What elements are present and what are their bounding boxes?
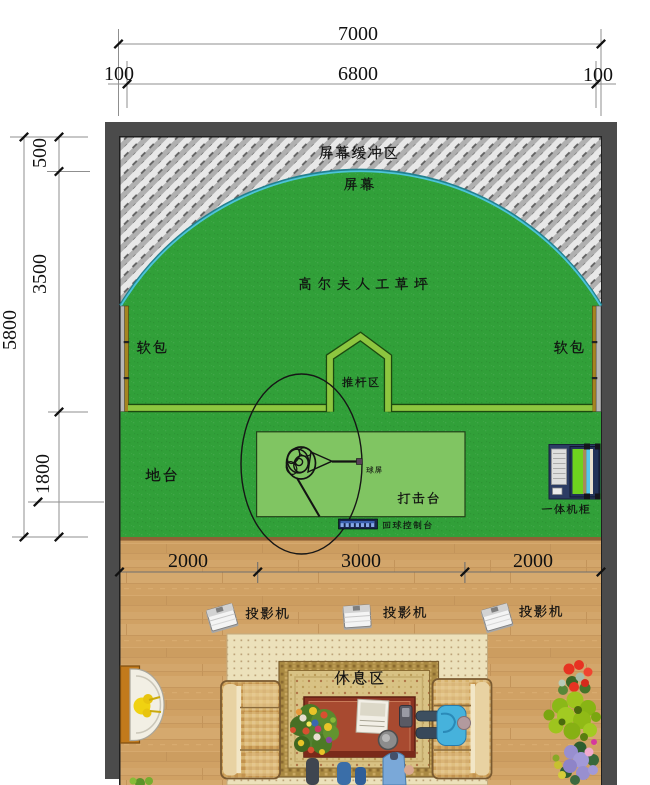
svg-text:2000: 2000 <box>168 550 208 572</box>
svg-text:3500: 3500 <box>29 254 51 294</box>
svg-text:1800: 1800 <box>32 454 54 494</box>
svg-text:2000: 2000 <box>513 550 553 572</box>
svg-text:3000: 3000 <box>341 550 381 572</box>
svg-text:7000: 7000 <box>338 23 378 45</box>
svg-text:500: 500 <box>29 138 51 168</box>
svg-text:100: 100 <box>104 63 134 85</box>
svg-text:100: 100 <box>583 64 613 86</box>
svg-text:6800: 6800 <box>338 63 378 85</box>
svg-text:5800: 5800 <box>0 310 21 350</box>
